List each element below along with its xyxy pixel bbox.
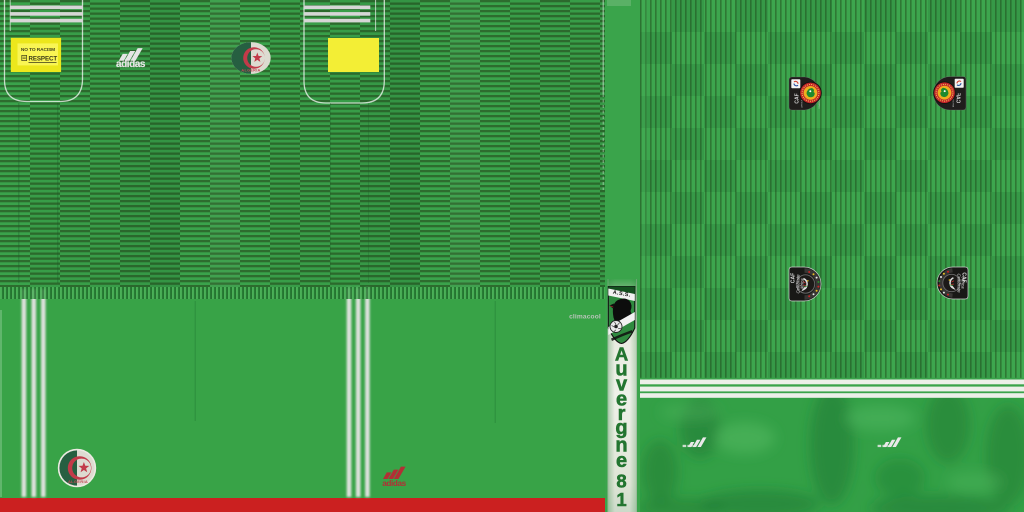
svg-text:RESPECT: RESPECT bbox=[29, 56, 58, 63]
svg-text:adidas: adidas bbox=[116, 59, 146, 70]
svg-text:e: e bbox=[616, 450, 627, 472]
svg-text:Africa: Africa bbox=[961, 276, 966, 289]
svg-text:ALGERIA: ALGERIA bbox=[68, 479, 88, 484]
svg-text:ALGERIA: ALGERIA bbox=[241, 69, 260, 73]
svg-text:1: 1 bbox=[616, 489, 626, 510]
svg-text:Africa: Africa bbox=[800, 278, 805, 291]
svg-text:adidas: adidas bbox=[382, 479, 406, 488]
svg-text:NO TO RACISM: NO TO RACISM bbox=[21, 47, 55, 53]
svg-text:climacool: climacool bbox=[569, 314, 601, 321]
